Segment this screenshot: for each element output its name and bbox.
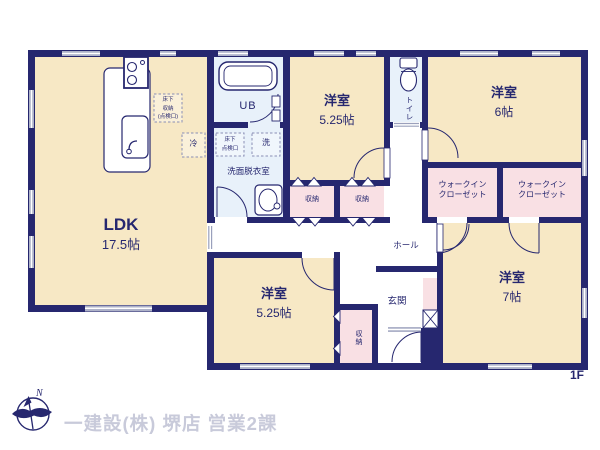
room-label-entrance: 玄関 [373,296,421,307]
wall-segment [207,122,248,128]
wall-segment [372,304,378,370]
company-credit: 一建設(株) 堺店 営業2課 [64,410,277,436]
room-label-ldk: LDK [66,215,176,235]
label-storage-center-left: 収納 [292,196,332,204]
wall-segment [422,50,428,130]
room-area-western-top: 5.25帖 [282,113,392,127]
shoe-cabinet [423,278,438,310]
wall-segment [334,180,340,223]
room-label-western-top: 洋室 [282,93,392,109]
wall-segment [207,217,215,223]
label-underfloor-storage: 床下 収納 (点検口) [154,96,182,122]
wall-segment [539,217,588,223]
room-label-toilet: トイレ [402,92,414,126]
wall-segment [207,252,214,370]
uf-access-line2: 点検口 [216,145,244,154]
kitchen [104,57,150,172]
wall-segment [376,266,443,272]
room-label-washroom: 洗面脱衣室 [213,166,284,176]
room-label-hall: ホール [382,240,430,250]
label-storage-center-right: 収納 [342,196,382,204]
uf-access-line1: 床下 [216,136,244,145]
wic-left-line2: クローゼット [425,190,500,200]
compass-icon [12,396,52,430]
door-leaf [437,224,443,252]
wic-right-line1: ウォークイン [504,180,580,190]
room-label-unit-bath: UB [228,100,268,113]
room-area-western-right-bottom: 7帖 [457,290,567,304]
label-washer: 洗 [252,138,280,148]
wall-segment [421,328,443,363]
toilet-tank-icon [400,58,417,68]
room-area-ldk: 17.5帖 [66,237,176,253]
room-label-western-right-top: 洋室 [449,85,559,101]
room-label-western-right-bottom: 洋室 [457,270,567,286]
wall-segment [207,252,302,258]
wall-segment [28,50,588,57]
uf-storage-line2: 収納 [154,105,182,114]
toilet-bowl-icon [401,69,417,91]
wall-segment [581,50,588,370]
door-arc-entrance [392,332,421,362]
ub-door-gap [248,122,280,128]
wic-right-line2: クローゼット [504,190,580,200]
kitchen-sink-icon [122,116,148,158]
shoe-counter [423,310,438,328]
label-storage-entrance: 収納 [350,322,362,354]
floor-label: 1F [550,368,584,382]
wall-segment [384,178,390,186]
room-label-western-bottom: 洋室 [219,286,329,302]
uf-storage-line1: 床下 [154,96,182,105]
compass-n-label: N [36,388,43,399]
wall-segment [283,50,290,223]
wic-left-line1: ウォークイン [425,180,500,190]
label-underfloor-access: 床下 点検口 [216,136,244,154]
floor-plan: LDK 17.5帖 洋室 5.25帖 洋室 6帖 洋室 5.25帖 洋室 7帖 … [0,0,600,450]
room-area-western-bottom: 5.25帖 [219,306,329,320]
door-leaf [422,130,428,160]
room-label-wic-left: ウォークイン クローゼット [425,180,500,199]
door-leaf [384,148,390,178]
wall-segment [207,50,214,223]
label-refrigerator: 冷 [182,139,205,149]
wall-segment [28,50,35,312]
room-area-western-right-top: 6帖 [449,105,559,119]
wall-segment [422,162,588,168]
wall-segment [334,304,378,310]
uf-storage-line3: (点検口) [154,113,182,122]
room-label-wic-right: ウォークイン クローゼット [504,180,580,199]
